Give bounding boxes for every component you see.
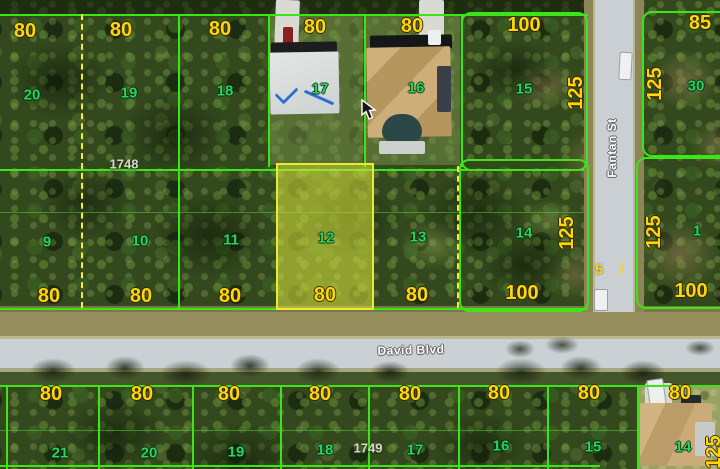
lot-number: 14 <box>675 440 692 455</box>
dim-label: 80 <box>488 383 510 403</box>
dim-label: 80 <box>14 21 36 41</box>
lot-number: 18 <box>317 443 334 458</box>
dim-label: 80 <box>669 383 691 403</box>
dim-label: 80 <box>399 384 421 404</box>
block-number: 1749 <box>354 442 383 455</box>
depth-label-corner-lot: 125 <box>704 435 720 468</box>
white-car-lot16 <box>428 30 441 45</box>
dim-label: 85 <box>689 13 711 33</box>
lot-line-interior-faint-south <box>0 430 637 431</box>
dim-label: 80 <box>406 285 428 305</box>
lot-number: 17 <box>312 82 329 97</box>
dim-label: 80 <box>578 383 600 403</box>
lot-number: 16 <box>408 81 425 96</box>
dashed-lot-line-west <box>81 14 83 308</box>
dim-label: 80 <box>219 286 241 306</box>
lot-number-selected: 12 <box>318 231 335 246</box>
lot-number: 1 <box>693 224 701 239</box>
dim-label: 80 <box>209 19 231 39</box>
lot-number: 10 <box>132 234 149 249</box>
lot-line-vertical-1 <box>178 14 180 308</box>
lot-line-david-blvd-south <box>0 385 720 387</box>
dim-label: 80 <box>218 384 240 404</box>
depth-label-lot1: 125 <box>644 215 664 248</box>
lot-line-s4 <box>280 385 282 469</box>
lot-number: 20 <box>24 88 41 103</box>
white-car-fantan-st-north <box>618 52 632 81</box>
lot-number: 30 <box>688 79 705 94</box>
lot-number: 17 <box>407 443 424 458</box>
lot-line-s8 <box>637 385 639 469</box>
solar-panels-lot16 <box>437 66 451 112</box>
lot-number: 15 <box>585 440 602 455</box>
lot-number: 20 <box>141 446 158 461</box>
dim-label: 80 <box>131 384 153 404</box>
lot-line-s1 <box>6 385 8 469</box>
pool-enclosure-lot16 <box>382 114 422 144</box>
lot-number: 13 <box>410 230 427 245</box>
lot-line-vertical-3 <box>364 14 366 167</box>
lot-line-s7 <box>547 385 549 469</box>
road-marking-number: 5 <box>595 262 603 276</box>
dim-label: 80 <box>401 16 423 36</box>
lot-number: 18 <box>217 84 234 99</box>
depth-label-lot14: 125 <box>557 216 577 249</box>
house-lot17-roof <box>269 51 339 114</box>
dim-label: 100 <box>507 15 540 35</box>
depth-label-lot30: 125 <box>645 67 665 100</box>
lot-line-s2 <box>98 385 100 469</box>
block-number: 1748 <box>110 158 139 171</box>
white-car-fantan-st-south <box>594 289 608 311</box>
lot-number: 11 <box>223 233 239 248</box>
mouse-cursor-icon <box>361 99 377 126</box>
dim-label: 100 <box>674 281 707 301</box>
lot-number: 16 <box>493 439 510 454</box>
aerial-parcel-map[interactable]: 80 80 80 80 80 100 85 80 80 80 80 80 100… <box>0 0 720 469</box>
dim-label: 100 <box>505 283 538 303</box>
lot-line-s6 <box>458 385 460 469</box>
lot-number: 9 <box>43 235 51 250</box>
depth-label-lot15: 125 <box>566 76 586 109</box>
tree-shadows-on-road <box>0 306 720 386</box>
lot-number: 19 <box>121 86 138 101</box>
dim-label: 80 <box>309 384 331 404</box>
lot-number: 19 <box>228 445 245 460</box>
street-label-david-blvd: David Blvd <box>377 343 444 357</box>
lot-line-vertical-2 <box>268 14 270 167</box>
dim-label: 80 <box>314 285 336 305</box>
dim-label: 80 <box>130 286 152 306</box>
dim-label: 80 <box>304 17 326 37</box>
dim-label: 80 <box>38 286 60 306</box>
lot-number: 21 <box>52 446 69 461</box>
dim-label: 80 <box>110 20 132 40</box>
lot-number: 14 <box>516 226 533 241</box>
street-label-fantan-st: Fantan St <box>606 118 618 177</box>
lot-number: 15 <box>516 82 533 97</box>
road-marking-arc <box>613 262 623 276</box>
lot-line-s5 <box>368 385 370 469</box>
lot-line-s3 <box>192 385 194 469</box>
lot-line-bottom <box>0 465 600 467</box>
dim-label: 80 <box>40 384 62 404</box>
pool-deck-lot16 <box>379 141 425 154</box>
